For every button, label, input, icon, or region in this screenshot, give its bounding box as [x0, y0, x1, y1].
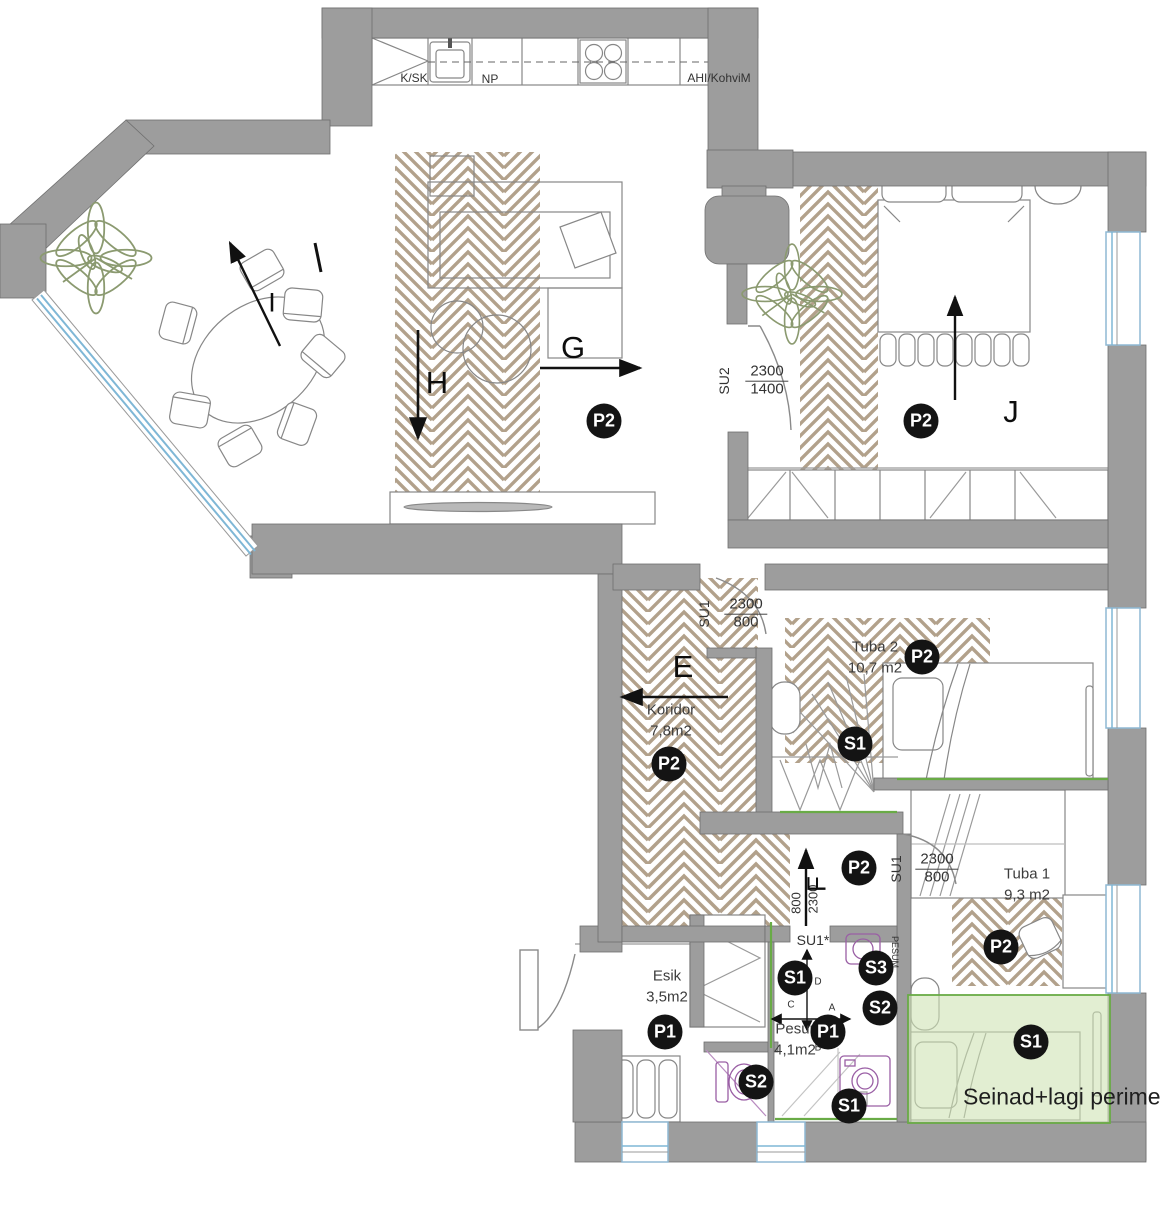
floor-plan-drawing — [0, 0, 1170, 1217]
floor-plan: Seinad+lagi perime P2P2P2S1P2P2P2S1S3S2P… — [0, 0, 1170, 1217]
walls — [0, 8, 1146, 1162]
